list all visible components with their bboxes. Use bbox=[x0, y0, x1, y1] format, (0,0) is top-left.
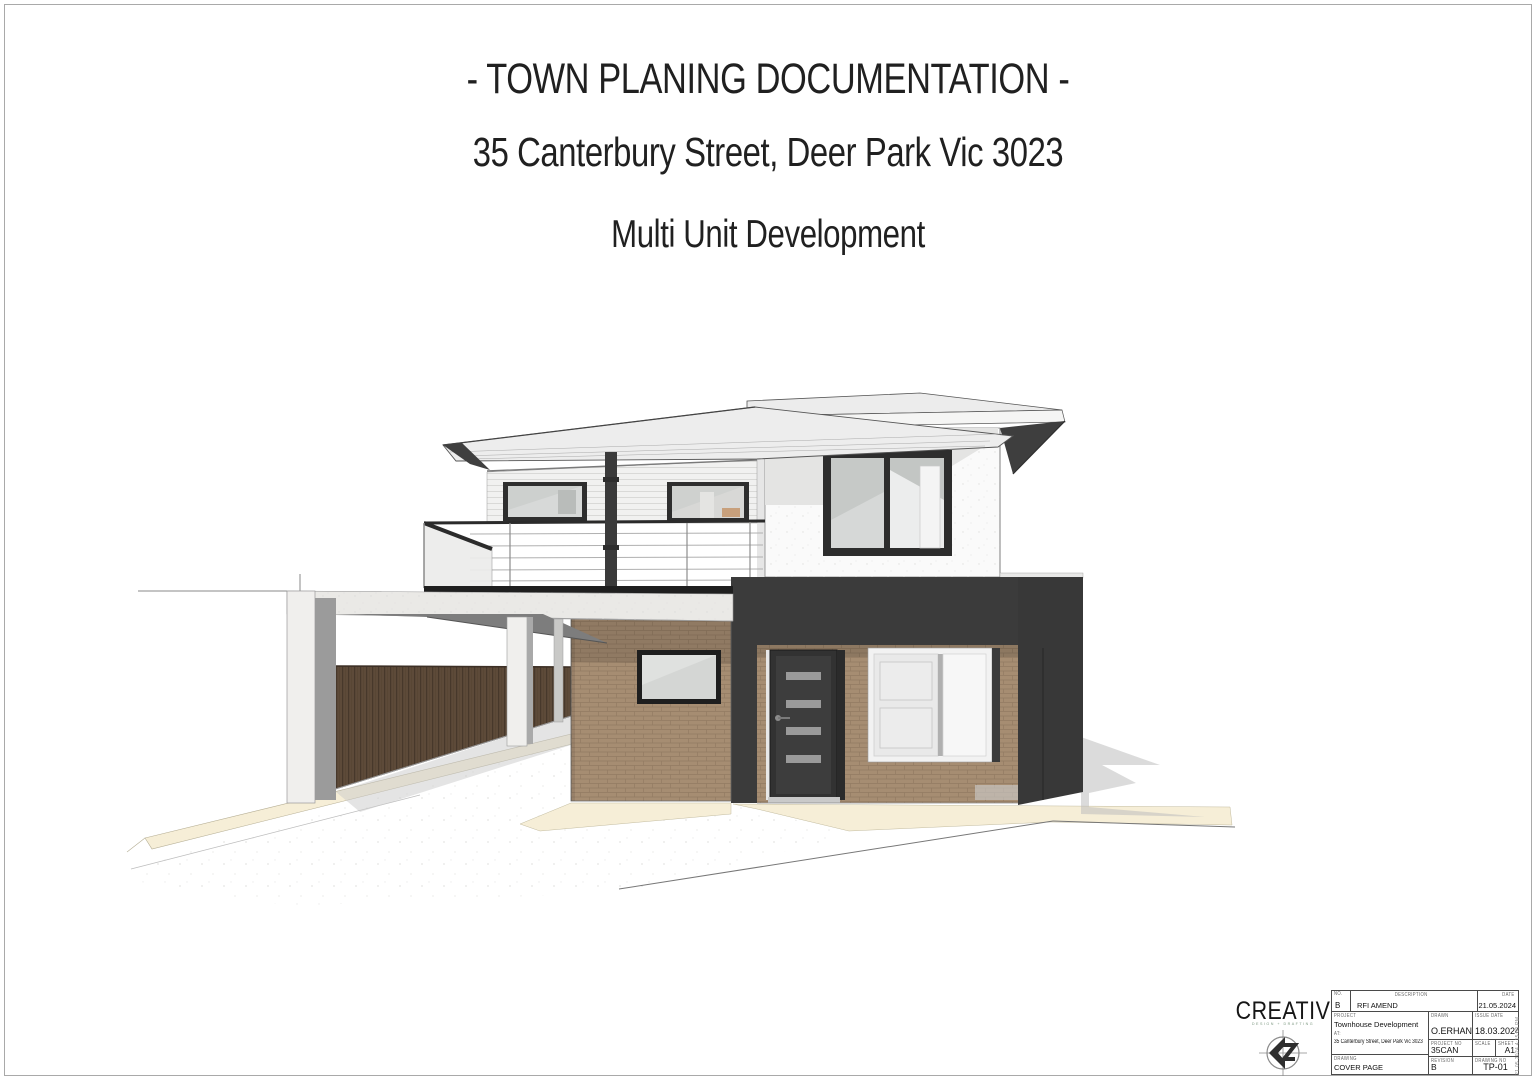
charcoal-right-wall bbox=[1018, 577, 1083, 805]
rev-no-label: No. bbox=[1334, 991, 1343, 997]
project-name: Townhouse Development bbox=[1334, 1020, 1418, 1029]
drawing-name: COVER PAGE bbox=[1334, 1063, 1383, 1072]
door-slat bbox=[786, 700, 821, 708]
drawn-value: O.ERHAN bbox=[1431, 1026, 1472, 1036]
logo-block: CREATIV DESIGN + DRAFTING bbox=[1230, 999, 1336, 1080]
brick-garage bbox=[571, 619, 731, 801]
downpipe bbox=[605, 452, 617, 593]
revision-value: B bbox=[1431, 1062, 1437, 1072]
logo-compass-icon bbox=[1257, 1028, 1309, 1078]
rev-no: B bbox=[1335, 1001, 1340, 1010]
cover-page: - TOWN PLANING DOCUMENTATION - 35 Canter… bbox=[0, 0, 1536, 1080]
project-label: PROJECT bbox=[1334, 1013, 1356, 1019]
building-shadow bbox=[1081, 737, 1205, 817]
left-window-1 bbox=[503, 482, 587, 521]
issue-date-label: ISSUE DATE bbox=[1475, 1013, 1503, 1019]
project-no-value: 35CAN bbox=[1431, 1045, 1458, 1055]
rev-desc: RFI AMEND bbox=[1357, 1001, 1398, 1010]
rev-desc-label: Description bbox=[1395, 992, 1428, 998]
tower-eave-soffit bbox=[1000, 421, 1065, 474]
carport-post-far bbox=[554, 619, 563, 722]
logo-tagline: DESIGN + DRAFTING bbox=[1234, 1021, 1332, 1026]
scale-label: SCALE bbox=[1475, 1041, 1491, 1047]
at-label: AT: bbox=[1334, 1031, 1341, 1037]
drawing-label: DRAWING bbox=[1334, 1056, 1357, 1062]
carport-post-left bbox=[287, 591, 336, 803]
house-render bbox=[0, 0, 1536, 1080]
rev-date-label: Date bbox=[1503, 992, 1515, 998]
left-window-2 bbox=[667, 482, 749, 522]
title-block: No. B Description RFI AMEND Date 21.05.2… bbox=[1331, 990, 1519, 1075]
garage-window bbox=[637, 650, 721, 704]
issue-date-value: 18.03.2024 bbox=[1475, 1026, 1519, 1036]
ground-floor-window bbox=[868, 648, 1000, 762]
carport-post-mid bbox=[507, 617, 533, 746]
drawing-no-value: TP-01 bbox=[1483, 1062, 1508, 1072]
door-slat bbox=[786, 727, 821, 735]
sheet-value: A1 bbox=[1505, 1045, 1515, 1055]
door-slat bbox=[786, 672, 821, 680]
tower-window bbox=[823, 450, 952, 556]
drawn-label: DRAWN bbox=[1431, 1013, 1449, 1019]
entry-door bbox=[766, 650, 845, 803]
charcoal-cladding bbox=[731, 573, 1083, 805]
project-address: 35 Canterbury Street, Deer Park Vic 3023 bbox=[1334, 1039, 1423, 1045]
door-slat bbox=[786, 755, 821, 763]
rev-date: 21.05.2024 bbox=[1478, 1001, 1516, 1010]
plot-stamp: 21.05.2024 4:15:09 PM bbox=[1515, 1017, 1521, 1075]
